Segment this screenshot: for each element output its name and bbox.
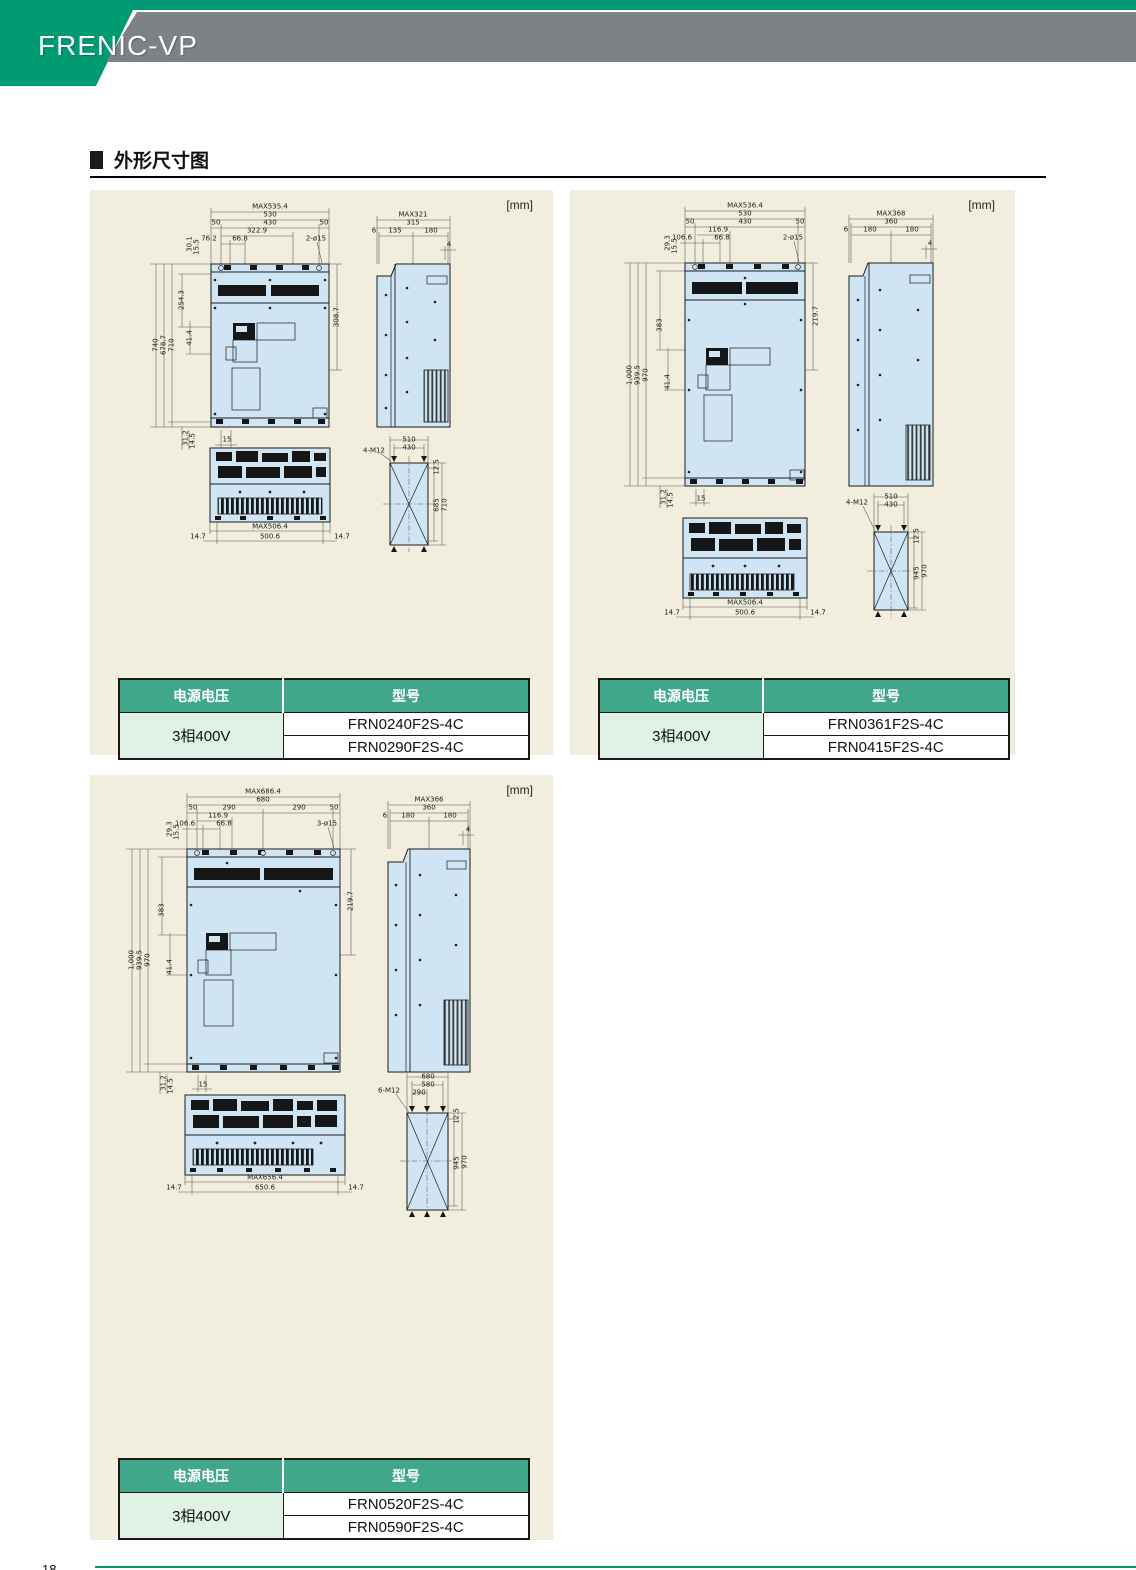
dimension-label: 66.8: [232, 236, 248, 243]
drawing-svg-3: [90, 775, 553, 1540]
dimension-label: 1,000: [627, 365, 634, 385]
dimension-label: 680: [421, 1074, 434, 1081]
dimension-label: 939.5: [137, 950, 144, 970]
section-title: 外形尺寸图: [114, 146, 209, 173]
table-row: 3相400V FRN0520F2S-4C: [119, 1493, 529, 1516]
mounting-view: [383, 456, 435, 552]
voltage-cell: 3相400V: [119, 1493, 283, 1540]
bottom-view: [683, 518, 807, 598]
dimension-label: 322.9: [247, 228, 267, 235]
header-banner: FRENIC-VP: [0, 0, 1136, 140]
side-view: [388, 849, 470, 1072]
section-marker-icon: [90, 151, 103, 169]
unit-label: [mm]: [506, 783, 533, 797]
dimension-label: 308.7: [334, 307, 341, 327]
drawing-svg-2: [570, 190, 1015, 755]
dimension-label: 430: [738, 219, 751, 226]
dimension-label: 650.6: [255, 1185, 275, 1192]
dimension-label: 6-M12: [378, 1088, 400, 1095]
col-model: 型号: [763, 679, 1009, 713]
dimension-label: 710: [442, 498, 449, 511]
dimension-label: MAX535.4: [252, 204, 288, 211]
dimension-label: 12.5: [434, 459, 441, 475]
spec-table-3: 电源电压 型号 3相400V FRN0520F2S-4C FRN0590F2S-…: [118, 1458, 530, 1540]
dimension-label: 50: [796, 219, 805, 226]
catalog-page: FRENIC-VP 外形尺寸图: [0, 0, 1136, 1570]
dimension-label: MAX656.4: [247, 1175, 283, 1182]
model-cell: FRN0290F2S-4C: [283, 736, 529, 760]
dimension-label: 4: [466, 827, 470, 834]
dimension-label: 14.7: [348, 1185, 364, 1192]
dimension-drawing-1: MAX535.45305043050322.976.266.82-ø1530.1…: [90, 190, 553, 755]
dimension-label: 254.3: [179, 290, 186, 310]
dimension-label: 4: [447, 242, 451, 249]
dimension-label: 14.7: [166, 1185, 182, 1192]
col-voltage: 电源电压: [599, 679, 763, 713]
col-model: 型号: [283, 679, 529, 713]
dimension-label: 180: [424, 228, 437, 235]
dimension-label: 6: [844, 227, 848, 234]
dimension-label: 219.7: [348, 891, 355, 911]
col-voltage: 电源电压: [119, 679, 283, 713]
dimension-label: 580: [421, 1082, 434, 1089]
dimension-label: 383: [159, 903, 166, 916]
dimension-label: 14.7: [664, 610, 680, 617]
unit-label: [mm]: [968, 198, 995, 212]
side-view: [377, 264, 450, 427]
col-model: 型号: [283, 1459, 529, 1493]
dimension-label: 219.7: [813, 306, 820, 326]
dimension-label: 180: [443, 813, 456, 820]
front-view: [187, 849, 340, 1072]
dimension-label: 290: [412, 1090, 425, 1097]
dimension-label: 970: [145, 953, 152, 966]
dimension-label: 15.5: [194, 239, 201, 255]
table-row: 3相400V FRN0240F2S-4C: [119, 713, 529, 736]
dimension-label: 66.8: [714, 235, 730, 242]
dimension-label: 510: [884, 494, 897, 501]
bottom-view: [210, 448, 330, 522]
dimension-label: 50: [320, 220, 329, 227]
dimension-drawing-2: MAX536.45305043050116.9106.666.82-ø1529.…: [570, 190, 1015, 755]
dimension-label: 15: [223, 437, 232, 444]
dimension-label: 500.6: [735, 610, 755, 617]
footer-rule: [95, 1566, 1136, 1568]
voltage-cell: 3相400V: [599, 713, 763, 760]
mounting-view: [400, 1106, 455, 1218]
model-cell: FRN0520F2S-4C: [283, 1493, 529, 1516]
dimension-label: 15: [697, 496, 706, 503]
col-voltage: 电源电压: [119, 1459, 283, 1493]
voltage-cell: 3相400V: [119, 713, 283, 760]
dimension-label: MAX368: [877, 211, 906, 218]
dimension-label: 15.5: [174, 824, 181, 840]
dimension-label: MAX321: [399, 212, 428, 219]
dimension-label: 50: [212, 220, 221, 227]
dimension-label: 180: [401, 813, 414, 820]
dimension-label: 945: [914, 566, 921, 579]
dimension-drawing-3: MAX686.46805029029050116.9106.666.83-ø15…: [90, 775, 553, 1540]
dimension-label: 14.5: [168, 1078, 175, 1094]
dimension-label: 710: [169, 338, 176, 351]
dimension-label: 15.5: [672, 238, 679, 254]
dimension-label: 360: [422, 805, 435, 812]
dimension-label: MAX366: [415, 797, 444, 804]
dimension-label: MAX686.4: [245, 789, 281, 796]
model-cell: FRN0240F2S-4C: [283, 713, 529, 736]
dimension-label: 66.8: [216, 821, 232, 828]
dimension-label: 4-M12: [363, 448, 385, 455]
dimension-label: 3-ø15: [317, 821, 337, 828]
dimension-label: 970: [643, 368, 650, 381]
dimension-label: 41.4: [665, 374, 672, 390]
dimension-label: 680: [256, 797, 269, 804]
side-view: [849, 263, 933, 486]
dimension-label: 4: [928, 241, 932, 248]
dimension-label: 14.5: [190, 433, 197, 449]
dimension-label: MAX506.4: [727, 600, 763, 607]
dimension-label: 360: [884, 219, 897, 226]
dimension-label: 41.4: [187, 330, 194, 346]
dimension-label: 14.5: [668, 492, 675, 508]
section-heading: 外形尺寸图: [90, 146, 209, 173]
dimension-label: 1,000: [129, 950, 136, 970]
front-view: [211, 264, 329, 427]
dimension-label: 180: [863, 227, 876, 234]
dimension-label: 12.5: [454, 1108, 461, 1124]
banner-shapes: [0, 0, 1136, 140]
dimension-label: 970: [462, 1155, 469, 1168]
spec-table-1: 电源电压 型号 3相400V FRN0240F2S-4C FRN0290F2S-…: [118, 678, 530, 760]
dimension-label: 970: [922, 564, 929, 577]
dimension-label: 500.6: [260, 534, 280, 541]
dimension-label: 116.9: [208, 813, 228, 820]
dimension-label: 530: [263, 212, 276, 219]
dimension-label: 14.7: [334, 534, 350, 541]
dimension-label: 116.9: [708, 227, 728, 234]
dimension-label: 530: [738, 211, 751, 218]
dimension-label: 740: [153, 338, 160, 351]
model-cell: FRN0415F2S-4C: [763, 736, 1009, 760]
dimension-label: 50: [330, 805, 339, 812]
drawing-svg-1: [90, 190, 553, 755]
dimension-label: 430: [402, 445, 415, 452]
dimension-label: 430: [263, 220, 276, 227]
table-row: 3相400V FRN0361F2S-4C: [599, 713, 1009, 736]
dimension-label: 50: [686, 219, 695, 226]
dimension-label: 430: [884, 502, 897, 509]
model-cell: FRN0590F2S-4C: [283, 1516, 529, 1540]
dimension-label: 135: [388, 228, 401, 235]
dimension-label: 2-ø15: [306, 236, 326, 243]
dimension-label: 290: [222, 805, 235, 812]
dimension-label: 510: [402, 437, 415, 444]
front-view: [685, 263, 805, 486]
dimension-label: 290: [292, 805, 305, 812]
model-cell: FRN0361F2S-4C: [763, 713, 1009, 736]
dimension-label: 685: [434, 498, 441, 511]
page-number: 18: [42, 1562, 56, 1570]
dimension-label: 41.4: [167, 959, 174, 975]
spec-table-2: 电源电压 型号 3相400V FRN0361F2S-4C FRN0415F2S-…: [598, 678, 1010, 760]
dimension-label: 6: [372, 228, 376, 235]
dimension-label: 4-M12: [846, 500, 868, 507]
product-logo: FRENIC-VP: [38, 30, 198, 62]
dimension-panel-1: MAX535.45305043050322.976.266.82-ø1530.1…: [90, 190, 553, 755]
dimension-panel-2: MAX536.45305043050116.9106.666.82-ø1529.…: [570, 190, 1015, 755]
dimension-label: 678.7: [161, 335, 168, 355]
mounting-view: [867, 525, 915, 618]
dimension-label: 2-ø15: [783, 235, 803, 242]
dimension-panel-3: MAX686.46805029029050116.9106.666.83-ø15…: [90, 775, 553, 1540]
gray-shape: [106, 12, 1136, 62]
dimension-label: 15: [199, 1082, 208, 1089]
bottom-view: [185, 1095, 345, 1175]
dimension-label: MAX506.4: [252, 524, 288, 531]
dimension-label: 383: [657, 318, 664, 331]
dimension-label: 12.5: [914, 528, 921, 544]
dimension-label: MAX536.4: [727, 203, 763, 210]
dimension-label: 14.7: [190, 534, 206, 541]
dimension-label: 180: [905, 227, 918, 234]
dimension-label: 50: [189, 805, 198, 812]
heading-rule: [90, 176, 1046, 178]
dimension-label: 315: [406, 220, 419, 227]
unit-label: [mm]: [506, 198, 533, 212]
dimension-label: 945: [454, 1156, 461, 1169]
dimension-label: 6: [383, 813, 387, 820]
dimension-label: 76.2: [201, 236, 217, 243]
dimension-label: 14.7: [810, 610, 826, 617]
dimension-label: 939.5: [635, 365, 642, 385]
